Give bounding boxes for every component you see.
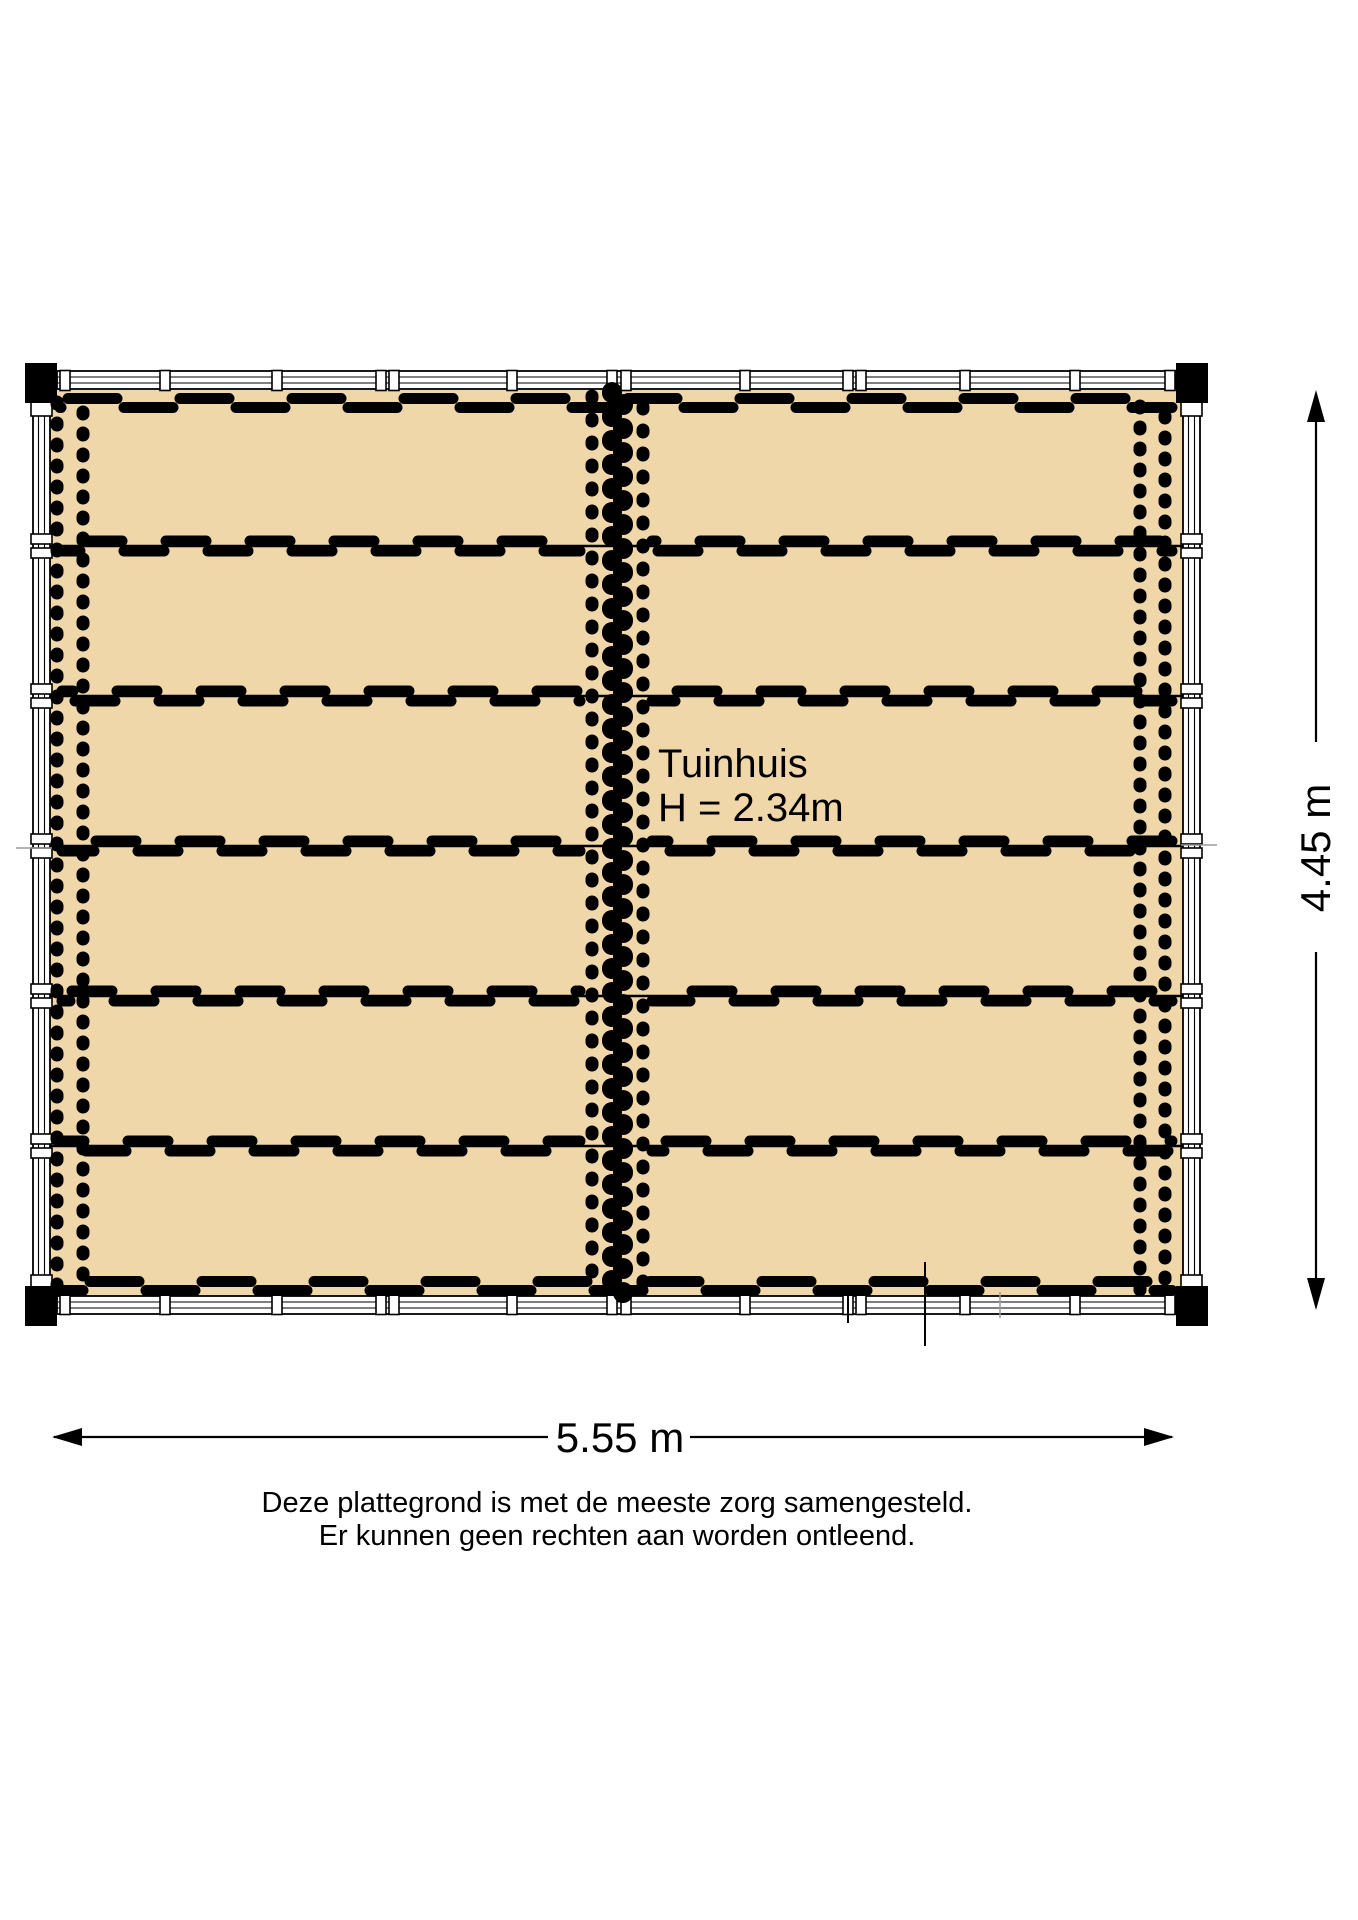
corner-post-bottom-left [25,1286,57,1326]
arrowhead-top-icon [1307,390,1325,422]
room-name-label: Tuinhuis [658,742,808,786]
height-dimension: 4.45 m [1292,390,1339,1310]
corner-post-top-left [25,363,57,403]
corner-post-bottom-right [1176,1286,1208,1326]
width-dimension-label: 5.55 m [556,1414,684,1461]
disclaimer-line-2: Er kunnen geen rechten aan worden ontlee… [319,1520,916,1552]
disclaimer-line-1: Deze plattegrond is met de meeste zorg s… [262,1487,973,1519]
disclaimer: Deze plattegrond is met de meeste zorg s… [262,1487,973,1552]
arrowhead-bottom-icon [1307,1278,1325,1310]
corner-post-top-right [1176,363,1208,403]
width-dimension: 5.55 m [52,1414,1174,1461]
floorplan-canvas: Tuinhuis H = 2.34m 5.55 m 4.45 m Deze pl… [0,0,1358,1920]
floorplan-page: Tuinhuis H = 2.34m 5.55 m 4.45 m Deze pl… [0,0,1358,1920]
arrowhead-left-icon [52,1428,82,1446]
arrowhead-right-icon [1144,1428,1174,1446]
room-height-label: H = 2.34m [658,786,844,830]
height-dimension-label: 4.45 m [1292,784,1339,912]
